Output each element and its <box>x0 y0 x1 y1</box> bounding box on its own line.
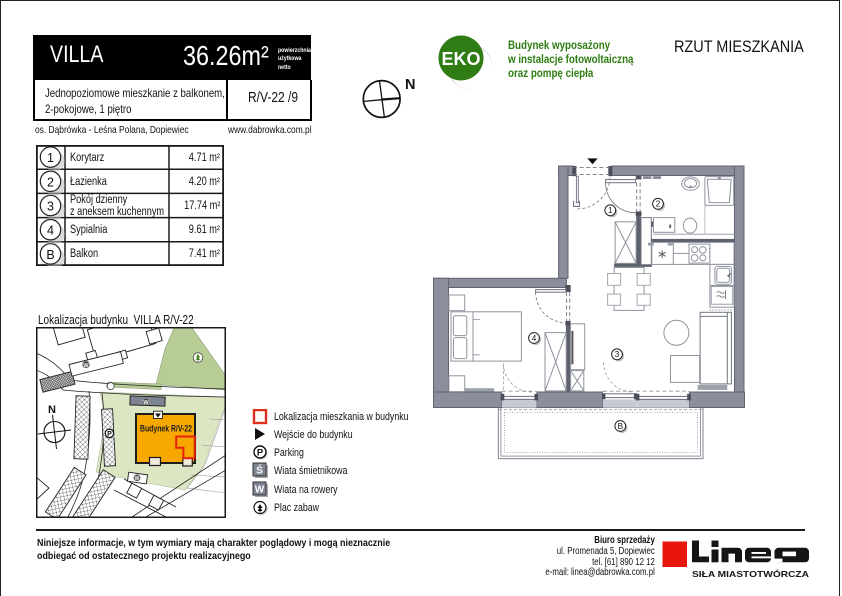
svg-text:EKO: EKO <box>441 49 480 69</box>
svg-text:W: W <box>143 400 149 406</box>
svg-text:W: W <box>83 363 89 369</box>
svg-text:1: 1 <box>608 206 613 215</box>
svg-text:3: 3 <box>615 350 620 359</box>
svg-text:SIŁA MIASTOTWÓRCZA: SIŁA MIASTOTWÓRCZA <box>692 568 809 579</box>
svg-text:P: P <box>107 431 112 438</box>
svg-text:N: N <box>405 77 415 93</box>
svg-text:4: 4 <box>532 334 537 343</box>
svg-text:2: 2 <box>656 200 661 209</box>
svg-text:Budynek R/V-22: Budynek R/V-22 <box>140 424 192 434</box>
svg-text:P: P <box>257 448 264 459</box>
svg-text:W: W <box>135 476 140 482</box>
svg-text:N: N <box>48 404 56 416</box>
svg-text:B: B <box>618 422 624 431</box>
svg-text:Ś: Ś <box>256 464 263 477</box>
svg-text:W: W <box>255 484 265 495</box>
